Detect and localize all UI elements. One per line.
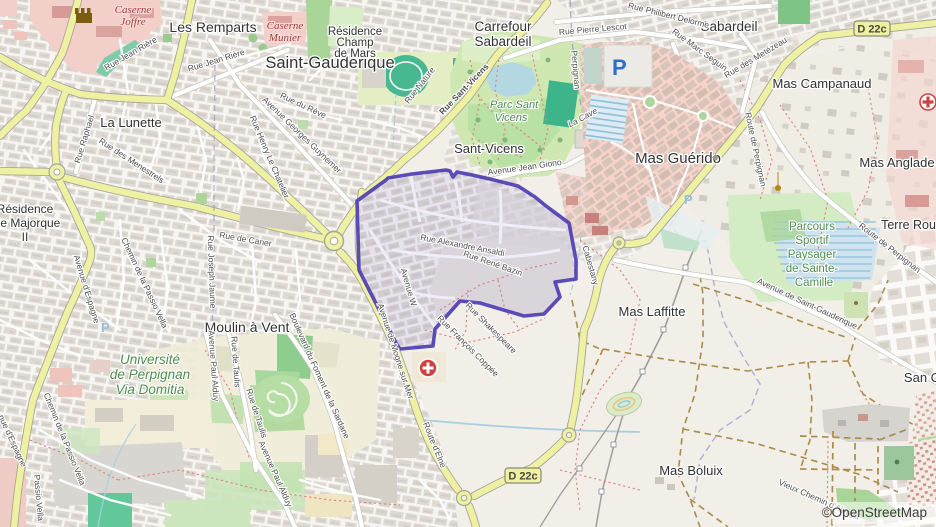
svg-text:Mas Campanaud: Mas Campanaud — [773, 76, 872, 91]
svg-text:Joffre: Joffre — [120, 16, 145, 28]
svg-text:D 22c: D 22c — [857, 24, 886, 36]
svg-text:Paysager: Paysager — [788, 249, 837, 261]
svg-text:©OpenStreetMap: ©OpenStreetMap — [822, 505, 927, 520]
svg-text:Résidence: Résidence — [0, 202, 54, 216]
svg-text:Munier: Munier — [268, 32, 302, 44]
svg-text:Caserne: Caserne — [115, 4, 152, 16]
svg-text:Carrefour: Carrefour — [474, 19, 532, 34]
svg-text:de Perpignan: de Perpignan — [110, 367, 190, 382]
svg-text:Les Remparts: Les Remparts — [169, 19, 256, 35]
svg-text:Mas Anglade: Mas Anglade — [859, 155, 934, 170]
svg-text:Via Domitia: Via Domitia — [116, 382, 185, 397]
svg-text:Parcours: Parcours — [789, 221, 835, 233]
svg-text:San C: San C — [904, 370, 936, 385]
svg-text:La Lunette: La Lunette — [100, 115, 161, 130]
svg-text:P: P — [101, 320, 110, 335]
svg-text:Vicens: Vicens — [495, 112, 528, 124]
svg-text:Camille: Camille — [795, 277, 833, 289]
svg-text:Mas Laffitte: Mas Laffitte — [619, 304, 686, 319]
svg-text:D 22c: D 22c — [508, 471, 537, 483]
svg-text:Mas Guérido: Mas Guérido — [635, 150, 721, 167]
svg-text:Caserne: Caserne — [267, 20, 304, 32]
svg-text:Sportif: Sportif — [795, 235, 829, 247]
svg-text:Sant-Vicens: Sant-Vicens — [454, 141, 524, 156]
svg-text:P: P — [612, 55, 627, 80]
svg-text:Sabardeil: Sabardeil — [474, 34, 531, 49]
svg-text:de Sainte-: de Sainte- — [786, 263, 839, 275]
svg-text:de Mars: de Mars — [334, 48, 376, 60]
svg-text:Terre Roug: Terre Roug — [881, 218, 936, 232]
svg-text:de Majorque: de Majorque — [0, 216, 61, 230]
svg-text:Université: Université — [120, 352, 180, 367]
svg-text:II: II — [22, 230, 29, 244]
svg-text:P: P — [684, 192, 693, 207]
svg-text:Mas Boluix: Mas Boluix — [659, 463, 723, 478]
svg-text:Parc Sant: Parc Sant — [490, 99, 539, 111]
